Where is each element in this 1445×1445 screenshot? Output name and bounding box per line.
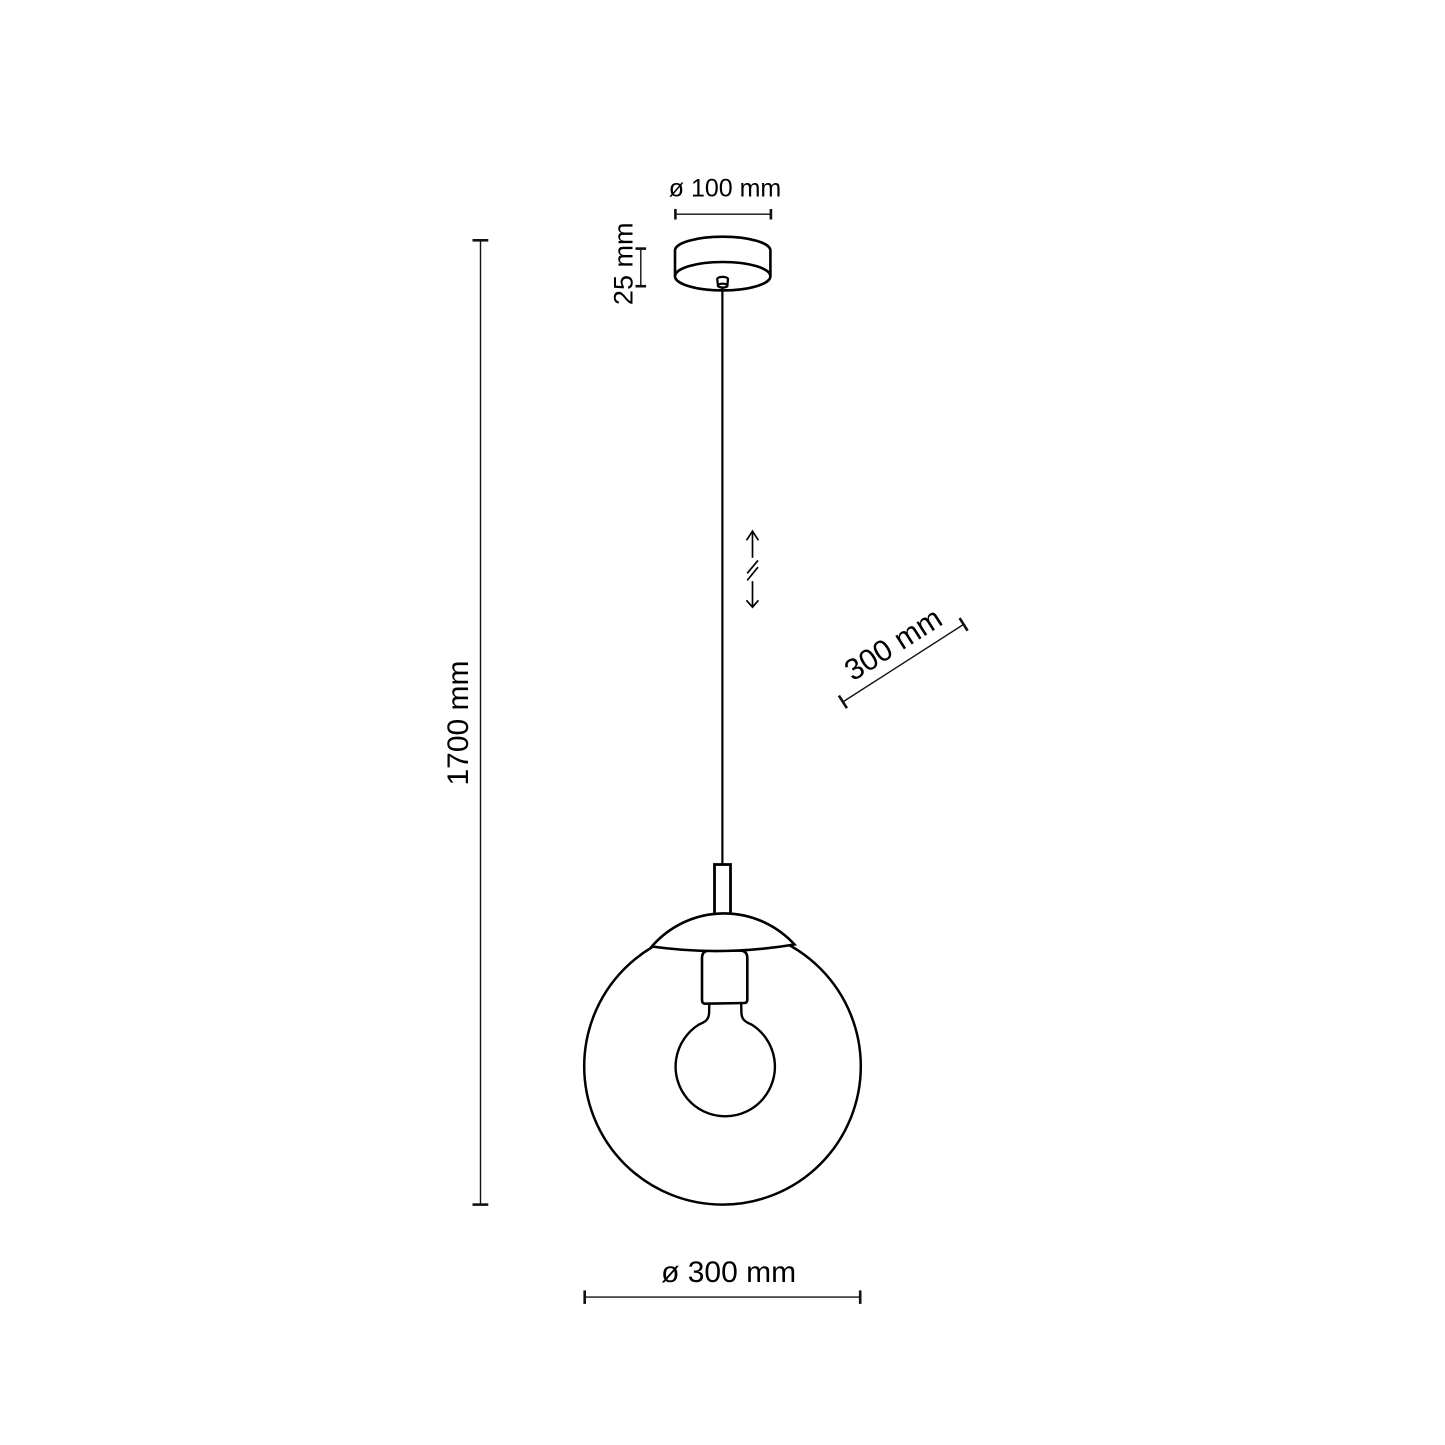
svg-text:1700 mm: 1700 mm <box>442 660 475 785</box>
svg-text:ø 300 mm: ø 300 mm <box>661 1256 796 1289</box>
svg-text:25 mm: 25 mm <box>609 223 639 306</box>
svg-text:ø 100 mm: ø 100 mm <box>669 175 782 203</box>
